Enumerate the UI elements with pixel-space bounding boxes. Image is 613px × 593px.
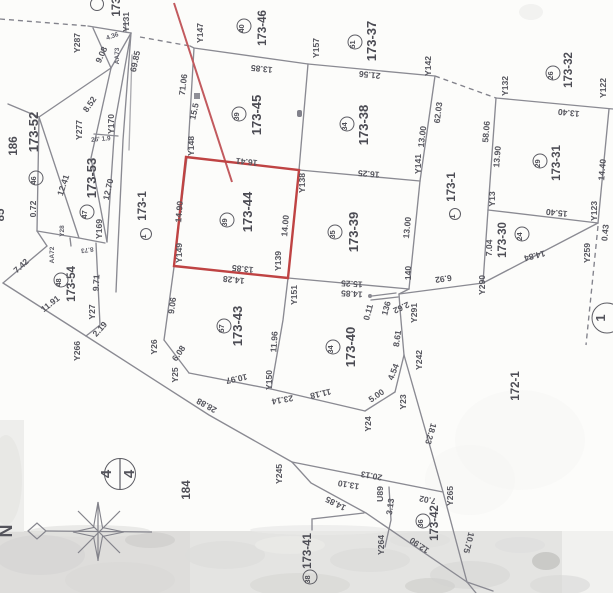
svg-text:U89: U89	[375, 486, 385, 502]
svg-text:Y149: Y149	[174, 243, 184, 263]
svg-text:173-53: 173-53	[84, 158, 99, 198]
svg-text:173-44: 173-44	[240, 191, 255, 232]
svg-text:186: 186	[8, 136, 20, 155]
svg-text:85: 85	[0, 208, 7, 221]
svg-text:173-1: 173-1	[137, 191, 149, 221]
svg-text:39: 39	[232, 112, 241, 120]
svg-text:47: 47	[80, 210, 89, 218]
svg-text:16.25: 16.25	[357, 168, 380, 180]
svg-text:26: 26	[546, 71, 555, 79]
svg-text:N: N	[0, 525, 16, 538]
svg-text:38: 38	[303, 575, 312, 583]
svg-text:173-32: 173-32	[563, 52, 575, 88]
svg-text:7.04: 7.04	[484, 239, 495, 256]
svg-text:Y131: Y131	[121, 12, 131, 32]
svg-text:Y148: Y148	[186, 136, 196, 156]
svg-text:Y259: Y259	[582, 243, 592, 263]
svg-text:Y28: Y28	[59, 225, 66, 237]
svg-text:173-41: 173-41	[302, 532, 314, 568]
svg-text:14.90: 14.90	[173, 200, 185, 223]
svg-text:Y13: Y13	[487, 191, 497, 207]
svg-text:173-38: 173-38	[356, 105, 371, 145]
svg-text:34: 34	[340, 122, 349, 131]
svg-text:Y264: Y264	[376, 535, 386, 555]
svg-text:40: 40	[237, 24, 246, 32]
svg-text:AA73: AA73	[114, 47, 121, 64]
svg-text:Y27: Y27	[87, 304, 97, 320]
svg-text:1: 1	[593, 314, 608, 321]
svg-text:173-1: 173-1	[446, 172, 458, 202]
svg-text:58.06: 58.06	[480, 120, 492, 143]
svg-text:Y132: Y132	[500, 76, 510, 96]
svg-text:1: 1	[448, 214, 457, 218]
svg-text:172-1: 172-1	[510, 371, 522, 401]
svg-text:173-37: 173-37	[364, 21, 379, 61]
svg-text:Y242: Y242	[414, 350, 424, 370]
svg-text:Y287: Y287	[72, 33, 82, 53]
svg-text:Y122: Y122	[598, 78, 608, 98]
svg-text:34: 34	[326, 345, 335, 354]
svg-text:Y123: Y123	[589, 201, 599, 221]
svg-text:4: 4	[121, 469, 138, 478]
svg-text:Y245: Y245	[274, 464, 284, 484]
svg-text:Y25: Y25	[170, 367, 180, 383]
svg-text:184: 184	[181, 480, 193, 500]
svg-text:Y169: Y169	[94, 219, 104, 239]
svg-text:36: 36	[416, 519, 425, 527]
svg-text:0.43: 0.43	[599, 224, 610, 242]
svg-text:29: 29	[533, 159, 542, 167]
svg-text:173-30: 173-30	[497, 222, 509, 258]
svg-text:Y157: Y157	[311, 38, 321, 58]
svg-text:14.85: 14.85	[341, 288, 363, 299]
svg-text:Y151: Y151	[289, 285, 299, 305]
svg-text:140: 140	[403, 266, 413, 281]
svg-text:48: 48	[54, 278, 63, 286]
svg-text:Y138: Y138	[297, 173, 307, 193]
svg-text:Y147: Y147	[195, 23, 205, 43]
svg-text:1: 1	[139, 234, 148, 238]
svg-text:13.90: 13.90	[491, 145, 503, 168]
svg-text:Y142: Y142	[423, 56, 433, 76]
svg-text:46: 46	[29, 176, 38, 184]
svg-text:14.40: 14.40	[596, 158, 608, 181]
svg-text:Y150: Y150	[264, 370, 274, 390]
svg-text:173-43: 173-43	[230, 306, 245, 346]
svg-text:14.00: 14.00	[279, 214, 291, 237]
svg-text:173-31: 173-31	[551, 144, 563, 180]
svg-text:4: 4	[98, 469, 115, 478]
svg-text:Y141: Y141	[413, 154, 423, 174]
svg-text:0.72: 0.72	[28, 200, 38, 217]
svg-text:Y266: Y266	[72, 341, 82, 361]
svg-text:57: 57	[217, 324, 226, 332]
svg-text:AA72: AA72	[49, 246, 56, 263]
svg-text:Y24: Y24	[363, 416, 373, 432]
svg-text:Y277: Y277	[74, 120, 84, 140]
svg-text:35: 35	[328, 230, 337, 238]
svg-text:51: 51	[348, 40, 357, 48]
svg-text:Y139: Y139	[273, 251, 283, 271]
svg-text:173-40: 173-40	[343, 327, 358, 367]
svg-text:9.71: 9.71	[91, 274, 102, 291]
svg-text:173-54: 173-54	[66, 265, 78, 301]
svg-text:24: 24	[515, 232, 524, 241]
svg-text:173-39: 173-39	[346, 212, 361, 252]
svg-text:39: 39	[220, 218, 229, 226]
svg-text:11.96: 11.96	[268, 331, 279, 353]
svg-text:173-45: 173-45	[249, 95, 264, 135]
svg-text:Y26: Y26	[149, 339, 159, 355]
svg-text:173-46: 173-46	[257, 10, 269, 46]
svg-text:15.25: 15.25	[341, 278, 363, 289]
svg-text:Y23: Y23	[398, 394, 408, 410]
svg-text:Y265: Y265	[445, 486, 455, 506]
svg-text:173-42: 173-42	[429, 505, 441, 541]
svg-text:173-52: 173-52	[26, 112, 41, 152]
svg-text:Y290: Y290	[477, 275, 487, 295]
svg-text:Y170: Y170	[106, 114, 116, 134]
